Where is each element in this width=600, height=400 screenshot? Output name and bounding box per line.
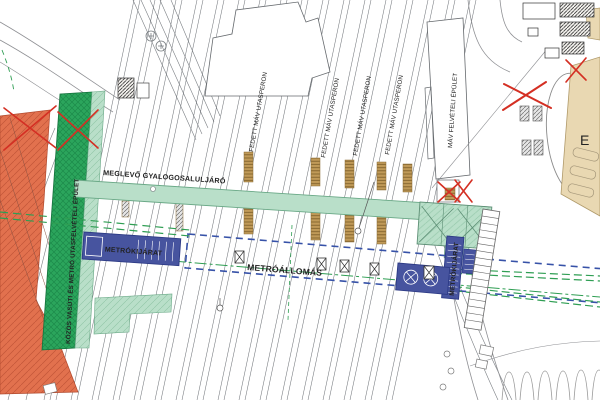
partial-building-letter: E bbox=[580, 132, 589, 148]
metro-exit-hall-right bbox=[396, 263, 450, 294]
crossed-box-icon bbox=[370, 263, 379, 275]
site-plan-page: METRÓKIJÁRAT METRÓKIJÁRAT bbox=[0, 0, 600, 400]
site-plan-drawing: METRÓKIJÁRAT METRÓKIJÁRAT bbox=[0, 0, 600, 400]
crossed-box-icon bbox=[424, 266, 434, 279]
crossed-box-icon bbox=[340, 260, 349, 272]
crossed-box-icon bbox=[235, 251, 244, 263]
